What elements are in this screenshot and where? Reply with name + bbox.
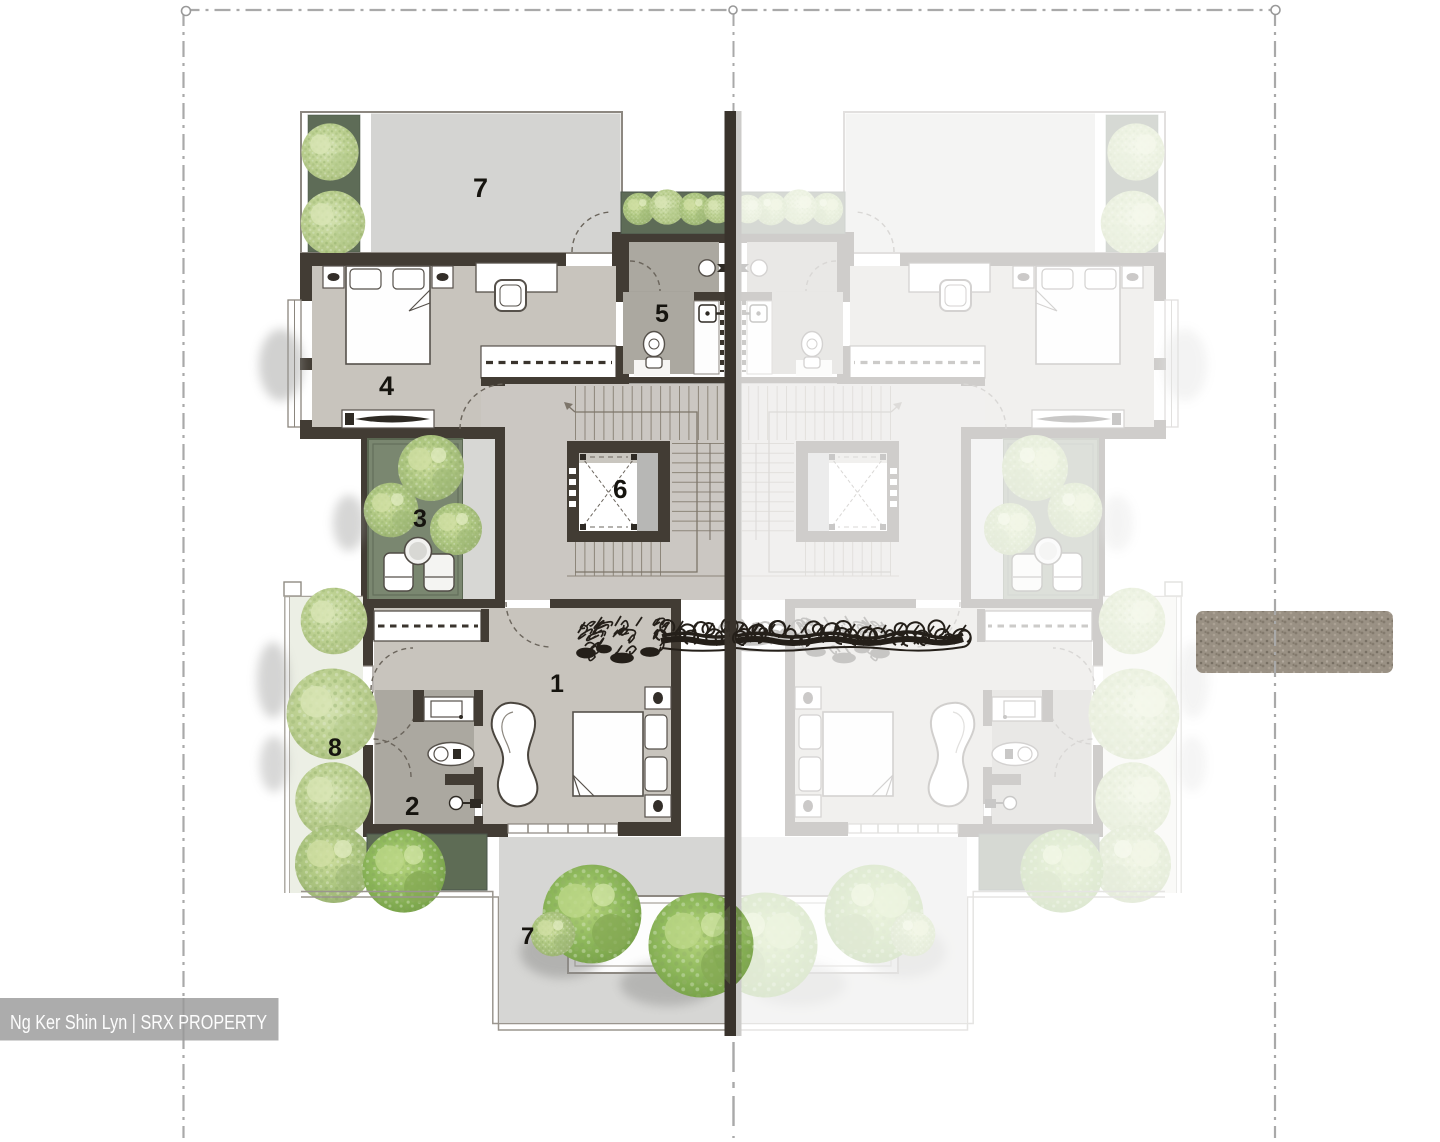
svg-text:1: 1 <box>550 670 564 698</box>
svg-text:6: 6 <box>613 474 627 504</box>
svg-text:Ng Ker Shin Lyn | SRX PROPERTY: Ng Ker Shin Lyn | SRX PROPERTY <box>10 1012 267 1034</box>
svg-text:5: 5 <box>655 300 669 328</box>
svg-text:7: 7 <box>473 173 488 203</box>
svg-text:8: 8 <box>328 734 342 762</box>
svg-text:3: 3 <box>413 505 427 533</box>
svg-text:7: 7 <box>521 923 534 950</box>
svg-text:2: 2 <box>405 791 419 821</box>
svg-text:4: 4 <box>379 371 394 401</box>
